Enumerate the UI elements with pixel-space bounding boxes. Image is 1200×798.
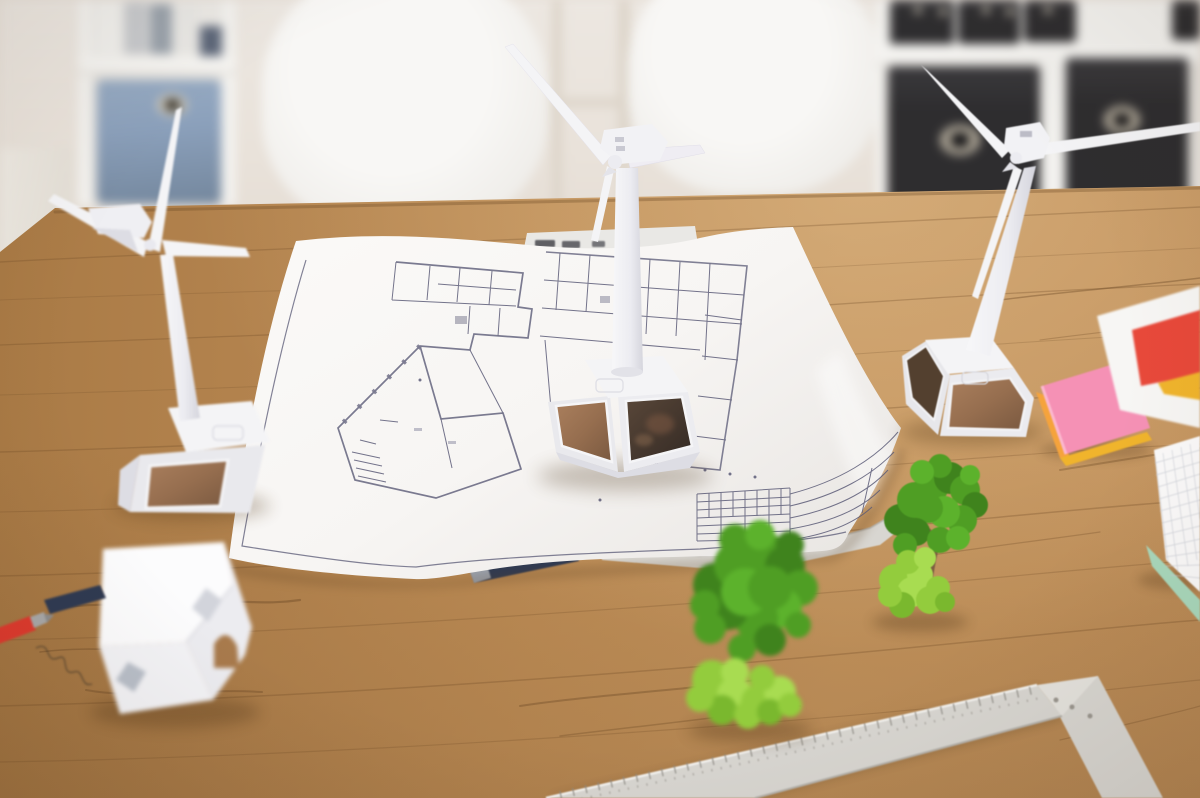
photo-scene [0, 0, 1200, 798]
t-square-ruler [546, 676, 1163, 798]
objects [0, 0, 1200, 798]
red-pen [0, 616, 36, 645]
notepad [1138, 436, 1200, 622]
nacelle-vent [1020, 131, 1032, 137]
rotor-blade [162, 240, 250, 257]
graphite-pencil [44, 585, 106, 614]
solar-panel [948, 378, 1026, 430]
solar-panel [146, 460, 228, 508]
tower-collar [611, 367, 643, 377]
canopy [884, 454, 988, 557]
tower-pole [966, 166, 1036, 356]
rotor-hub [144, 239, 156, 251]
rotor-blade [505, 44, 611, 165]
moss-base [686, 658, 802, 729]
ruler-screw [1070, 705, 1075, 710]
ruler-screw [1088, 714, 1093, 719]
tower-pole [160, 254, 200, 421]
shadow [872, 612, 968, 632]
turbine-base [902, 336, 1034, 437]
nacelle-vent [615, 137, 624, 142]
rotor-blade [148, 107, 182, 252]
moss-base [878, 547, 955, 618]
fiber-curl [36, 646, 92, 684]
rotor-hub [1010, 152, 1022, 164]
rotor-hub [608, 155, 622, 169]
wind-turbine-left [48, 107, 270, 520]
nacelle-vent [616, 146, 625, 151]
rotor-blade [921, 65, 1010, 158]
ruler-screw [1054, 698, 1059, 703]
tower-pole [612, 168, 643, 372]
desk-pens [0, 585, 106, 685]
